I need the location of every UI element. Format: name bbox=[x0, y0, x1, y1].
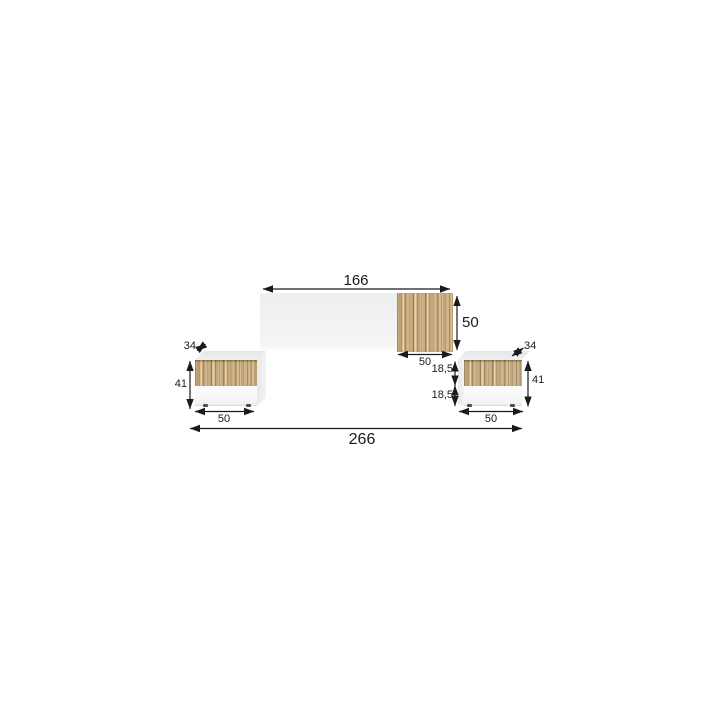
label-right-nightstand-height: 41 bbox=[532, 375, 544, 386]
label-drawer-front-bottom-height: 18,5 bbox=[432, 390, 453, 401]
dim-line-left-depth bbox=[197, 344, 206, 351]
label-right-nightstand-width: 50 bbox=[485, 414, 497, 425]
label-left-nightstand-depth: 34 bbox=[184, 341, 196, 352]
label-left-nightstand-height: 41 bbox=[175, 379, 187, 390]
dimension-lines bbox=[0, 0, 712, 712]
label-drawer-front-top-height: 18,5 bbox=[432, 364, 453, 375]
label-total-width: 266 bbox=[349, 432, 376, 448]
label-left-nightstand-width: 50 bbox=[218, 414, 230, 425]
dim-line-right-depth bbox=[512, 348, 524, 356]
label-wood-panel-width: 50 bbox=[419, 357, 431, 368]
label-headboard-width: 166 bbox=[343, 273, 368, 288]
label-right-nightstand-depth: 34 bbox=[524, 341, 536, 352]
dimension-diagram: 166 50 50 34 41 50 34 18,5 18,5 41 50 26… bbox=[0, 0, 712, 712]
label-headboard-height: 50 bbox=[462, 315, 479, 330]
